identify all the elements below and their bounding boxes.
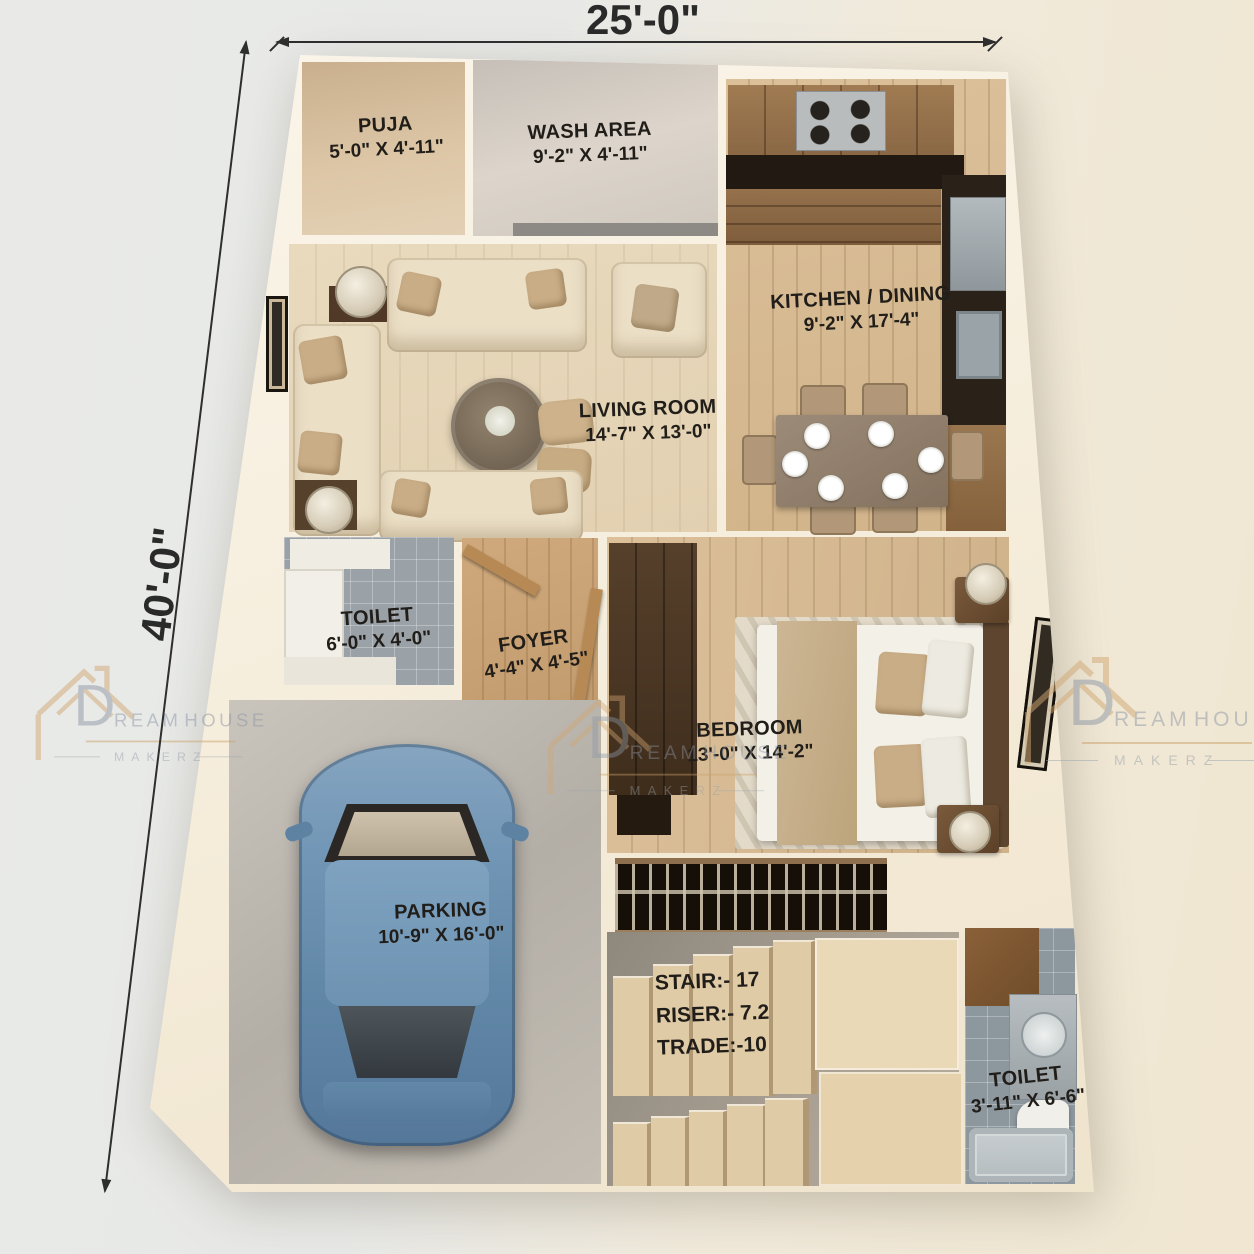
table-lamp bbox=[335, 266, 387, 318]
stair-railing bbox=[615, 858, 887, 934]
label-parking: PARKING 10'-9" X 16'-0" bbox=[329, 894, 553, 952]
railing-handrail bbox=[615, 890, 887, 894]
flower-vase bbox=[485, 406, 515, 436]
stove-cooktop bbox=[796, 91, 886, 151]
logo-underline bbox=[600, 774, 756, 776]
throw-pillow bbox=[529, 476, 569, 516]
stair-step bbox=[727, 1104, 769, 1186]
throw-pillow bbox=[525, 268, 568, 311]
room-living bbox=[289, 244, 717, 532]
logo-dash bbox=[1208, 760, 1254, 761]
throw-pillow bbox=[395, 270, 442, 317]
label-stairs: STAIR:- 17 RISER:- 7.2 TRADE:-10 bbox=[654, 960, 867, 1065]
plate bbox=[804, 423, 830, 449]
floor-plan-render: 25'-0" 40'-0" bbox=[0, 0, 1254, 1254]
wall-picture-frame bbox=[266, 296, 288, 392]
brand-watermark: D REAM HOUSE MAKERZ bbox=[1022, 646, 1254, 781]
stair-step bbox=[689, 1110, 729, 1186]
plate bbox=[882, 473, 908, 499]
plan-shadow: PUJA 5'-0" X 4'-11" WASH AREA 9'-2" X 4'… bbox=[0, 0, 1254, 1254]
bathtub bbox=[969, 1128, 1073, 1182]
arrow-bottom-icon bbox=[100, 1179, 112, 1194]
throw-pillow bbox=[630, 283, 680, 333]
table-lamp bbox=[965, 563, 1007, 605]
logo-dash bbox=[1046, 760, 1098, 761]
label-wash-area: WASH AREA 9'-2" X 4'-11" bbox=[499, 115, 681, 172]
label-puja: PUJA 5'-0" X 4'-11" bbox=[305, 108, 467, 167]
wash-threshold bbox=[513, 223, 718, 236]
arrow-top-icon bbox=[240, 39, 252, 54]
car-trunk bbox=[323, 1082, 491, 1126]
stair-step bbox=[613, 1122, 653, 1186]
label-living-room: LIVING ROOM 14'-7" X 13'-0" bbox=[557, 393, 739, 450]
width-dimension-line bbox=[277, 41, 995, 43]
house-plan: PUJA 5'-0" X 4'-11" WASH AREA 9'-2" X 4'… bbox=[0, 0, 1254, 1254]
door-leaf bbox=[462, 544, 541, 596]
table-lamp bbox=[305, 486, 353, 534]
bed-pillow bbox=[921, 639, 975, 719]
sink bbox=[1021, 1012, 1067, 1058]
plate bbox=[868, 421, 894, 447]
plate bbox=[918, 447, 944, 473]
logo-dash bbox=[716, 790, 764, 791]
brand-watermark: D REAM HOUSE MAKERZ bbox=[33, 656, 253, 775]
table-lamp bbox=[949, 811, 991, 853]
room-toilet-lower bbox=[965, 928, 1075, 1184]
throw-pillow bbox=[297, 430, 343, 476]
throw-pillow bbox=[390, 477, 432, 519]
kitchen-countertop bbox=[726, 155, 964, 189]
plate bbox=[782, 451, 808, 477]
stair-step bbox=[613, 976, 655, 1096]
dining-chair bbox=[950, 431, 984, 481]
stair-step bbox=[651, 1116, 691, 1186]
stair-step bbox=[765, 1098, 809, 1186]
dining-chair bbox=[742, 435, 778, 485]
width-dimension-label: 25'-0" bbox=[558, 0, 728, 44]
logo-dash bbox=[54, 756, 100, 757]
logo-dash bbox=[567, 790, 615, 791]
throw-pillow bbox=[298, 335, 349, 386]
toilet-ledge bbox=[290, 539, 390, 569]
logo-underline bbox=[1082, 742, 1252, 744]
refrigerator bbox=[950, 197, 1006, 291]
toilet-step bbox=[284, 657, 396, 685]
brand-watermark: D REAM HOUSE MAKERZ bbox=[545, 685, 775, 809]
dining-chair bbox=[810, 503, 856, 535]
plate bbox=[818, 475, 844, 501]
kitchen-base-cabinets bbox=[726, 189, 941, 245]
logo-dash bbox=[197, 756, 243, 757]
